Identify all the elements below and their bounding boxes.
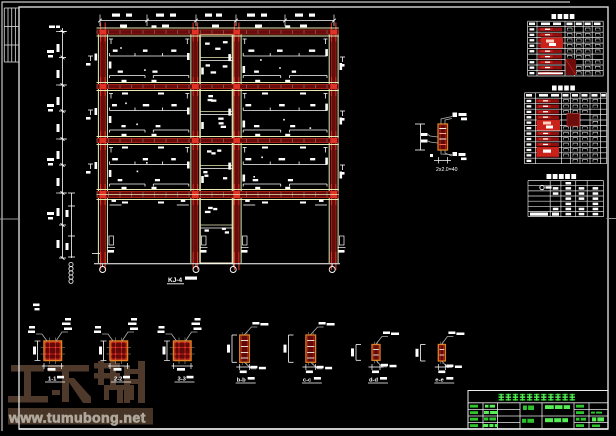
svg-text:www.tumubong.net: www.tumubong.net: [8, 411, 146, 427]
svg-text:KJ-4: KJ-4: [168, 277, 182, 284]
svg-text:2x2.0=40: 2x2.0=40: [436, 167, 458, 173]
